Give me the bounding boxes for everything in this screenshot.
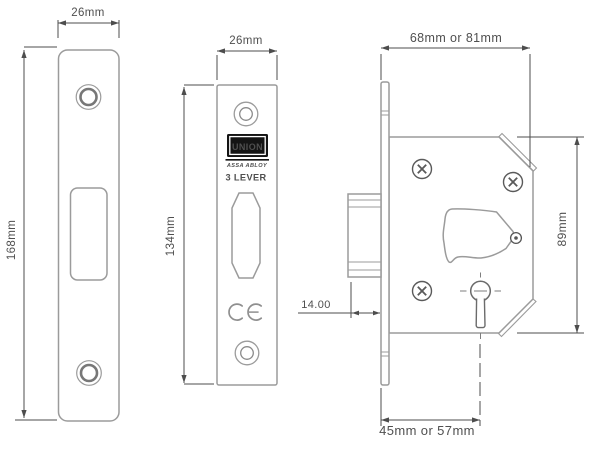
backset-label: 45mm or 57mm <box>379 423 475 438</box>
dim-faceplate-width: 26mm <box>58 7 119 38</box>
bolt-cutout <box>71 188 108 280</box>
lock-side-view <box>348 82 537 385</box>
case-height-label: 89mm <box>555 212 569 247</box>
dim-lockfront-width: 26mm <box>217 35 277 80</box>
diagram-canvas: UNION ASSA ABLOY 3 LEVER <box>0 0 600 450</box>
union-logo-text: UNION <box>232 142 263 152</box>
lock-dimension-diagram: UNION ASSA ABLOY 3 LEVER <box>0 0 600 450</box>
faceplate-front-view <box>59 50 120 421</box>
bolt-throw-label: 14.00 <box>301 299 331 311</box>
faceplate-height-label: 168mm <box>6 220 18 260</box>
deadbolt-face <box>232 193 260 278</box>
lock-front-view: UNION ASSA ABLOY 3 LEVER <box>217 85 277 385</box>
forend-plate-side <box>381 82 389 385</box>
lever-pivot-icon <box>511 233 522 244</box>
screw-icon <box>413 282 432 301</box>
dim-lockfront-height: 134mm <box>165 85 214 384</box>
dim-bolt-throw: 14.00 <box>298 282 380 318</box>
dim-faceplate-height: 168mm <box>6 47 57 420</box>
deadbolt-side <box>348 194 381 277</box>
screw-icon <box>504 173 523 192</box>
case-depth-label: 68mm or 81mm <box>410 31 502 45</box>
assa-abloy-text: ASSA ABLOY <box>226 163 268 169</box>
screw-icon <box>413 160 432 179</box>
union-logo: UNION <box>226 134 270 160</box>
dim-backset: 45mm or 57mm <box>379 344 480 438</box>
lockfront-height-label: 134mm <box>165 216 177 256</box>
lockfront-width-label: 26mm <box>229 35 263 47</box>
faceplate-width-label: 26mm <box>71 7 105 19</box>
lever-count-label: 3 LEVER <box>225 173 266 183</box>
